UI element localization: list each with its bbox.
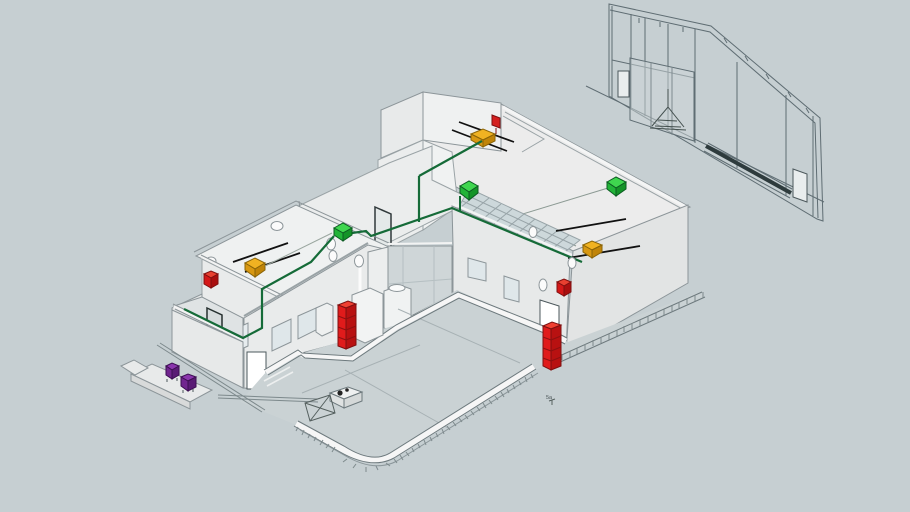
svg-text:5a: 5a	[546, 395, 553, 401]
